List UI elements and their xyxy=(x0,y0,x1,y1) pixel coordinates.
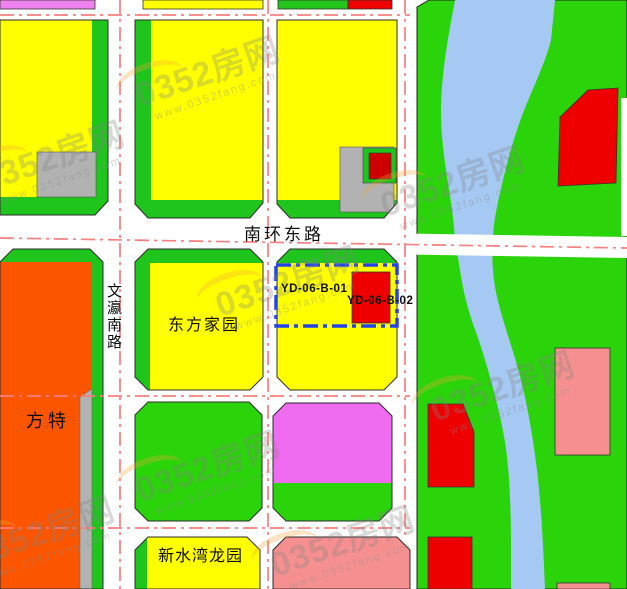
block-label-dongfangjiayuan: 东方家园 xyxy=(168,318,240,334)
block-yd-parcels xyxy=(277,249,397,390)
park-red-block-bottom xyxy=(428,537,472,589)
block-label-fangte: 方特 xyxy=(26,412,70,430)
block-label-xinshuiwanlongyuan: 新水湾龙园 xyxy=(158,549,243,565)
road-label-wenyingnanlu: 文瀛南路 xyxy=(106,283,121,351)
block-magenta xyxy=(273,403,392,521)
top-sliver-blocks xyxy=(0,0,392,9)
block-green-middle xyxy=(135,402,262,521)
planning-map: 南环东路 文瀛南路 东方家园 YD-06-B-01 YD-06-B-02 方特 … xyxy=(0,0,627,589)
parcel-label-yd-06-b-01: YD-06-B-01 xyxy=(281,284,347,296)
parcel-label-yd-06-b-02: YD-06-B-02 xyxy=(347,296,413,308)
park-red-block-middle xyxy=(428,404,474,487)
road-label-nanhuandonglu: 南环东路 xyxy=(244,226,324,243)
right-edge-road xyxy=(621,98,627,236)
block-topleft xyxy=(0,20,108,215)
block-topmiddle xyxy=(135,20,263,218)
block-topright xyxy=(277,20,397,218)
park-pink-block xyxy=(555,348,610,455)
block-pink-bottom xyxy=(273,537,410,589)
park-pink-block-bottom-sliver xyxy=(557,583,610,589)
